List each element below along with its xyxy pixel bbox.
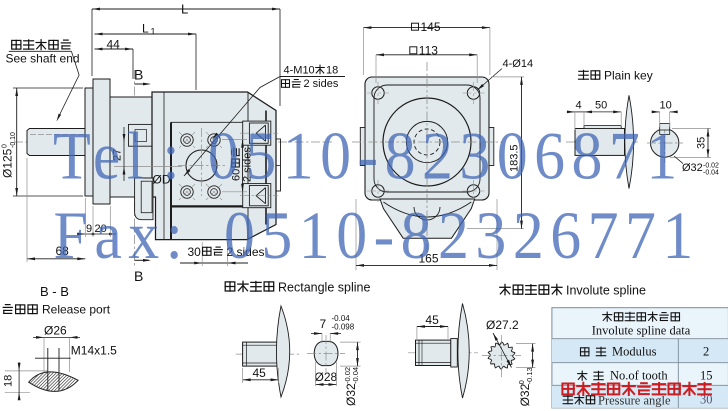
- svg-text:-0.04: -0.04: [351, 367, 360, 384]
- svg-text:Modulus: Modulus: [612, 345, 657, 359]
- svg-text:Ø32: Ø32: [518, 383, 532, 406]
- svg-text:Pressure angle: Pressure angle: [598, 394, 671, 408]
- svg-text:-0.02: -0.02: [703, 163, 719, 170]
- svg-text:18: 18: [3, 375, 15, 387]
- svg-text:B: B: [134, 67, 143, 83]
- svg-text:Ø27.2: Ø27.2: [486, 318, 519, 332]
- svg-text:18: 18: [326, 65, 338, 77]
- svg-text:50: 50: [595, 100, 607, 112]
- svg-text:44: 44: [107, 38, 121, 52]
- svg-text:113: 113: [419, 44, 438, 58]
- svg-text:10: 10: [660, 100, 672, 112]
- svg-text:B - B: B - B: [40, 284, 69, 299]
- svg-text:2 sides: 2 sides: [304, 78, 339, 90]
- svg-text:Ø125: Ø125: [1, 148, 15, 178]
- svg-text:-0.13: -0.13: [525, 367, 534, 384]
- svg-text:M14x1.5: M14x1.5: [71, 344, 117, 358]
- svg-text:Involute spline data: Involute spline data: [592, 324, 691, 338]
- svg-text:-0.04: -0.04: [703, 170, 719, 177]
- svg-text:45: 45: [425, 313, 439, 327]
- svg-text:Release port: Release port: [42, 303, 111, 317]
- svg-text:Fax: 0510-82326771: Fax: 0510-82326771: [54, 198, 700, 273]
- svg-text:4-M10: 4-M10: [284, 65, 315, 77]
- svg-text:7: 7: [320, 317, 327, 331]
- svg-text:L: L: [181, 2, 188, 17]
- svg-text:4: 4: [576, 100, 582, 112]
- svg-text:Rectangle spline: Rectangle spline: [278, 281, 370, 295]
- svg-text:2: 2: [703, 345, 709, 359]
- svg-text:No.of tooth: No.of tooth: [610, 369, 668, 383]
- svg-text:Ø32: Ø32: [682, 162, 703, 174]
- svg-text:Plain key: Plain key: [604, 69, 653, 83]
- svg-text:Ø28: Ø28: [315, 370, 338, 384]
- svg-text:Ø32: Ø32: [344, 383, 358, 406]
- svg-text:35: 35: [696, 137, 708, 149]
- svg-text:30: 30: [188, 245, 202, 259]
- svg-text:L: L: [142, 22, 149, 36]
- svg-text:145: 145: [421, 20, 441, 34]
- svg-text:Ø26: Ø26: [44, 324, 67, 338]
- svg-text:4-Ø14: 4-Ø14: [503, 58, 534, 70]
- svg-text:0: 0: [2, 144, 9, 148]
- svg-text:-0.098: -0.098: [332, 323, 355, 332]
- svg-text:Tel: 0510-82306871: Tel: 0510-82306871: [53, 119, 684, 194]
- svg-text:-0.10: -0.10: [10, 132, 17, 148]
- svg-text:1: 1: [151, 27, 156, 37]
- svg-text:See shaft end: See shaft end: [6, 52, 80, 66]
- svg-text:Involute spline: Involute spline: [566, 284, 646, 298]
- svg-text:15: 15: [700, 369, 713, 383]
- svg-text:45: 45: [253, 366, 267, 380]
